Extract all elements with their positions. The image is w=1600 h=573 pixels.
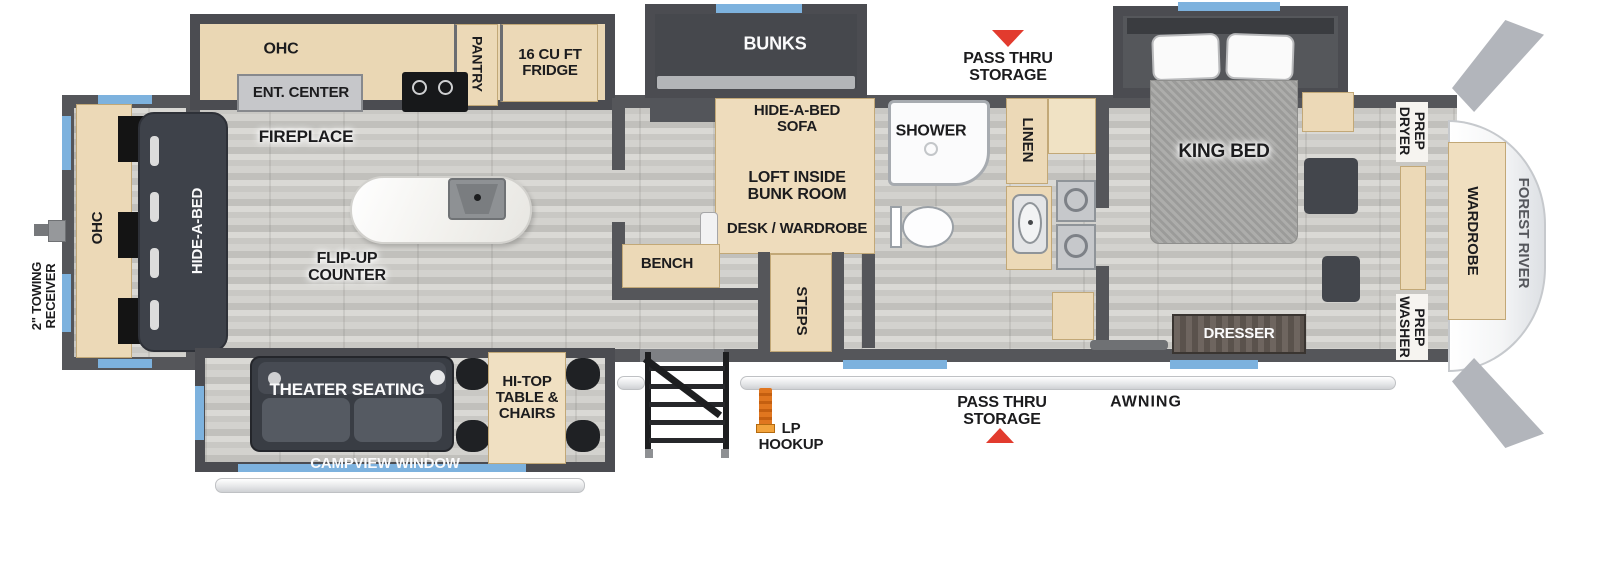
- label-forest-river-brand: FOREST RIVER: [1515, 178, 1531, 289]
- bottom-window-1: [843, 360, 947, 369]
- living-window-left: [195, 386, 204, 440]
- sofa-cushion-mark-1: [150, 136, 159, 166]
- rear-window-left-2: [62, 274, 71, 332]
- toilet-tank: [890, 206, 902, 248]
- steps-wall-right: [832, 252, 844, 352]
- label-loft-inside: LOFT INSIDE BUNK ROOM: [748, 169, 847, 203]
- front-closet-strip: [1400, 166, 1426, 290]
- sofa-cushion-mark-4: [150, 300, 159, 330]
- pass-thru-bottom-arrow-icon: [986, 428, 1014, 443]
- label-hide-a-bed-sofa: HIDE-A-BED SOFA: [754, 103, 840, 135]
- rear-window-top: [98, 95, 152, 104]
- label-ohc-rear: OHC: [90, 212, 106, 245]
- nightstand-tan: [1302, 92, 1354, 132]
- label-pass-thru-top: PASS THRU STORAGE: [963, 50, 1052, 84]
- label-bench: BENCH: [641, 256, 693, 272]
- label-theater-seating: THEATER SEATING: [269, 381, 424, 399]
- label-desk-wardrobe: DESK / WARDROBE: [727, 221, 867, 237]
- headboard: [1127, 18, 1334, 34]
- label-pass-thru-bottom: PASS THRU STORAGE: [957, 394, 1046, 428]
- awning-rail-main: [740, 376, 1396, 390]
- bedroom-wall-shelf: [1090, 340, 1168, 350]
- label-dresser: DRESSER: [1203, 326, 1274, 342]
- label-fireplace: FIREPLACE: [259, 128, 354, 146]
- bath-cabinet: [1048, 98, 1096, 154]
- label-lp-hookup: LP HOOKUP: [759, 421, 824, 453]
- label-ent-center: ENT. CENTER: [253, 85, 349, 101]
- label-dryer-prep: DRYER PREP: [1397, 107, 1427, 156]
- label-fridge: 16 CU FT FRIDGE: [518, 47, 581, 79]
- steps-wall-left: [758, 252, 770, 352]
- bunk-front-band: [657, 76, 855, 89]
- rear-window-bottom: [98, 359, 152, 368]
- label-hide-a-bed-rear: HIDE-A-BED: [190, 188, 206, 274]
- nightstand-dark-2: [1322, 256, 1360, 302]
- hitop-chair-1: [456, 358, 490, 390]
- awning-rail-short: [617, 376, 645, 390]
- stove-burner-2: [438, 80, 453, 95]
- dryer-door-icon: [1064, 188, 1088, 212]
- label-bunks: BUNKS: [743, 34, 806, 53]
- entry-steps-icon: [645, 352, 729, 458]
- bath-bedroom-wall-b: [1096, 266, 1109, 348]
- bunkroom-wall-left-a: [612, 98, 625, 170]
- vanity-sink-drain: [1028, 220, 1033, 225]
- bedroom-entry-step: [1052, 292, 1094, 340]
- bottom-window-2: [1170, 360, 1258, 369]
- stove-icon: [402, 72, 468, 112]
- sofa-cushion-mark-2: [150, 192, 159, 222]
- theater-cushion-2: [354, 398, 442, 442]
- label-washer-prep: WASHER PREP: [1397, 296, 1427, 357]
- label-pantry: PANTRY: [470, 36, 485, 92]
- label-towing-receiver: 2" TOWING RECEIVER: [30, 262, 58, 330]
- toilet-icon: [902, 206, 954, 248]
- label-king-bed: KING BED: [1178, 142, 1269, 162]
- front-cap-corner-top: [1452, 20, 1544, 112]
- label-wardrobe: WARDROBE: [1464, 186, 1480, 275]
- towing-receiver-icon: [48, 220, 66, 242]
- front-cap-corner-bottom: [1452, 358, 1544, 448]
- bath-bedroom-wall-a: [1096, 98, 1109, 208]
- stove-burner-1: [412, 80, 427, 95]
- sofa-cushion-mark-3: [150, 248, 159, 278]
- hitop-chair-2: [456, 420, 490, 452]
- shower-pan: [888, 100, 990, 186]
- label-hi-top-table: HI-TOP TABLE & CHAIRS: [496, 374, 558, 422]
- bunkroom-wall-bottom: [612, 288, 762, 300]
- theater-cushion-1: [262, 398, 350, 442]
- label-flip-up-counter: FLIP-UP COUNTER: [308, 250, 386, 284]
- theater-cupholder-2: [430, 370, 445, 385]
- floorplan-canvas: OHC ENT. CENTER PANTRY 16 CU FT FRIDGE B…: [0, 0, 1600, 573]
- awning-rail-living: [215, 478, 585, 493]
- shower-drain-icon: [924, 142, 938, 156]
- hitop-chair-3: [566, 358, 600, 390]
- bunks-window: [716, 4, 802, 13]
- pillow-left: [1151, 33, 1221, 81]
- label-campview-window: CAMPVIEW WINDOW: [310, 456, 459, 472]
- rear-window-left-1: [62, 116, 71, 170]
- label-shower: SHOWER: [896, 122, 967, 139]
- label-ohc-kitchen: OHC: [264, 40, 299, 57]
- label-linen: LINEN: [1019, 118, 1035, 163]
- bunkroom-canister: [700, 212, 718, 248]
- nightstand-dark-1: [1304, 158, 1358, 214]
- towing-receiver-tip: [34, 224, 48, 236]
- label-steps: STEPS: [793, 286, 809, 335]
- hitop-chair-4: [566, 420, 600, 452]
- pass-thru-top-arrow-icon: [992, 30, 1024, 47]
- washer-door-icon: [1064, 234, 1088, 258]
- island-faucet-icon: [474, 194, 481, 201]
- bedroom-window: [1178, 2, 1280, 11]
- pillow-right: [1225, 33, 1295, 81]
- label-awning: AWNING: [1110, 393, 1182, 410]
